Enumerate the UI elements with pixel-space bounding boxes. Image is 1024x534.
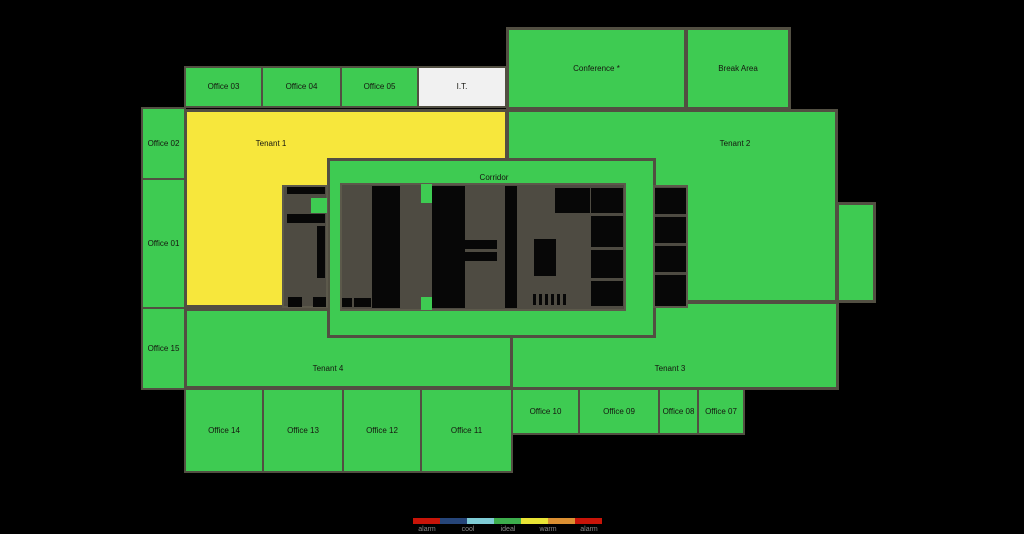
legend-label-warm-3: warm — [539, 526, 556, 533]
floorplan-canvas: Tenant 2Tenant 1Tenant 4Tenant 3Corridor… — [0, 0, 1024, 534]
legend-segment-alarm-cold — [413, 518, 440, 524]
legend-label-ideal-2: ideal — [501, 526, 516, 533]
room-office-11[interactable]: Office 11 — [420, 388, 513, 473]
room-office-02[interactable]: Office 02 — [141, 107, 186, 180]
room-label-office-10: Office 10 — [530, 408, 562, 416]
room-label-office-09: Office 09 — [603, 408, 635, 416]
core-cell — [655, 188, 686, 214]
room-label-office-03: Office 03 — [208, 83, 240, 91]
room-label-office-15: Office 15 — [148, 345, 180, 353]
core-cell — [655, 246, 686, 272]
core-cell — [557, 294, 560, 305]
room-label-tenant-3: Tenant 3 — [655, 365, 686, 373]
core-cell — [342, 298, 352, 307]
legend-segment-ideal — [494, 518, 521, 524]
room-it-room[interactable]: I.T. — [417, 66, 507, 108]
room-conference[interactable]: Conference * — [506, 27, 687, 110]
room-label-office-13: Office 13 — [287, 427, 319, 435]
core-cell — [505, 186, 517, 308]
core-cell — [311, 198, 327, 213]
room-label-office-11: Office 11 — [451, 427, 482, 435]
room-office-12[interactable]: Office 12 — [342, 388, 422, 473]
room-tenant-2-east-wing[interactable] — [836, 202, 876, 303]
core-cell — [534, 239, 556, 276]
core-cell — [591, 188, 623, 213]
core-cell — [465, 240, 497, 249]
core-cell — [372, 186, 400, 308]
room-office-05[interactable]: Office 05 — [340, 66, 419, 108]
core-cell — [563, 294, 566, 305]
room-label-office-01: Office 01 — [148, 240, 180, 248]
core-cell — [539, 294, 542, 305]
core-cell — [591, 281, 623, 306]
room-office-14[interactable]: Office 14 — [184, 388, 264, 473]
room-label-office-14: Office 14 — [208, 427, 240, 435]
legend-segment-alarm-hot — [575, 518, 602, 524]
core-cell — [465, 252, 497, 261]
core-cell — [655, 217, 686, 243]
legend-segment-cool-deep — [440, 518, 467, 524]
legend-label-cool-1: cool — [462, 526, 475, 533]
core-cell — [551, 294, 554, 305]
room-label-break-area: Break Area — [718, 65, 758, 73]
room-label-it-room: I.T. — [457, 83, 468, 91]
room-label-tenant-4: Tenant 4 — [313, 365, 344, 373]
core-cell — [432, 186, 465, 308]
room-office-13[interactable]: Office 13 — [262, 388, 344, 473]
room-break-area[interactable]: Break Area — [685, 27, 791, 110]
room-office-04[interactable]: Office 04 — [261, 66, 342, 108]
core-cell — [287, 187, 325, 194]
room-label-office-12: Office 12 — [366, 427, 398, 435]
core-cell — [591, 216, 623, 247]
legend-label-alarm-4: alarm — [580, 526, 598, 533]
room-office-01[interactable]: Office 01 — [141, 178, 186, 309]
legend-segment-cool-light — [467, 518, 494, 524]
room-label-office-02: Office 02 — [148, 140, 180, 148]
core-cell — [313, 297, 326, 307]
room-label-office-08: Office 08 — [663, 408, 695, 416]
room-label-corridor: Corridor — [480, 174, 509, 182]
core-cell — [421, 184, 432, 203]
room-office-09[interactable]: Office 09 — [578, 388, 660, 435]
room-office-03[interactable]: Office 03 — [184, 66, 263, 108]
room-label-office-04: Office 04 — [286, 83, 318, 91]
room-office-10[interactable]: Office 10 — [511, 388, 580, 435]
room-label-tenant-2: Tenant 2 — [720, 140, 751, 148]
core-cell — [354, 298, 371, 307]
core-cell — [655, 275, 686, 306]
room-label-tenant-1: Tenant 1 — [256, 140, 287, 148]
legend-color-bar — [413, 518, 602, 524]
legend-label-alarm-0: alarm — [418, 526, 436, 533]
room-label-conference: Conference * — [573, 65, 620, 73]
core-cell — [288, 297, 302, 307]
room-office-07[interactable]: Office 07 — [697, 388, 745, 435]
room-label-office-07: Office 07 — [705, 408, 737, 416]
core-cell — [317, 226, 325, 278]
room-office-15[interactable]: Office 15 — [141, 307, 186, 390]
core-cell — [287, 214, 325, 223]
core-cell — [555, 188, 590, 213]
legend-segment-warm — [521, 518, 548, 524]
core-cell — [591, 250, 623, 278]
core-cell — [421, 297, 432, 310]
core-cell — [545, 294, 548, 305]
core-cell — [533, 294, 536, 305]
room-office-08[interactable]: Office 08 — [658, 388, 699, 435]
room-label-office-05: Office 05 — [364, 83, 396, 91]
legend-segment-warm-hot — [548, 518, 575, 524]
